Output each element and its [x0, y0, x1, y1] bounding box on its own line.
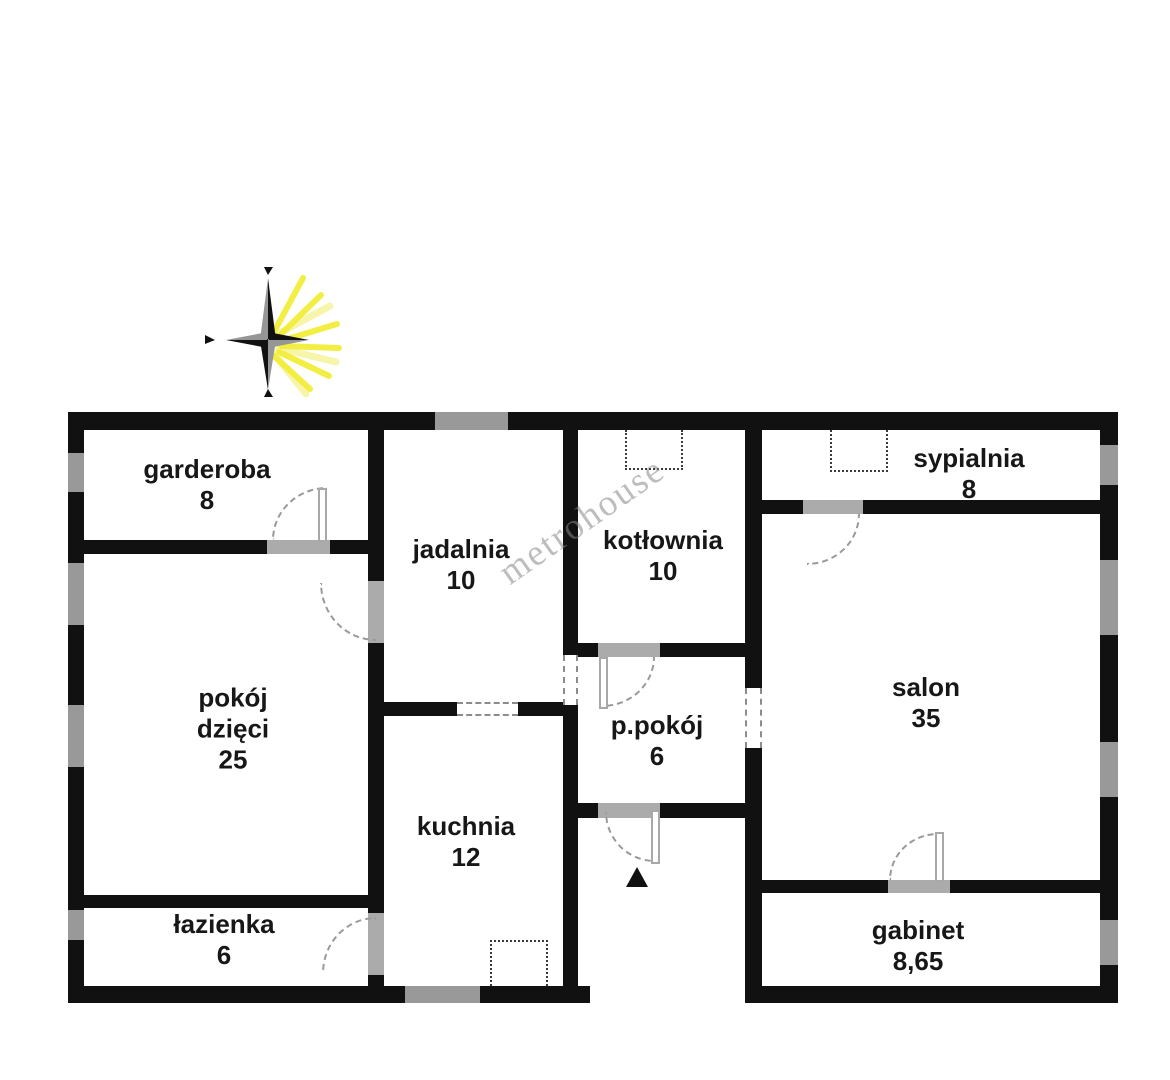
- room-name: salon: [892, 672, 960, 703]
- room-label-kuchnia: kuchnia 12: [417, 811, 515, 873]
- wall-exterior-top: [68, 412, 1118, 430]
- window-gabinet-right: [1100, 920, 1118, 965]
- door-leaf-garderoba: [318, 488, 327, 542]
- room-area: 8,65: [872, 946, 964, 977]
- wall-exterior-right: [1100, 412, 1118, 1003]
- door-swing-arc-entrance: [605, 812, 655, 862]
- room-area: 6: [611, 741, 703, 772]
- wall-kotlownia-bottom: [563, 643, 762, 657]
- room-label-garderoba: garderoba 8: [143, 454, 270, 516]
- passage-jadalnia-kuchnia: [457, 702, 518, 716]
- door-leaf-gabinet: [935, 832, 944, 882]
- door-swing-arc-kotlownia: [602, 657, 655, 707]
- window-salon-right-lower: [1100, 742, 1118, 797]
- room-name: kuchnia: [417, 811, 515, 842]
- wall-exterior-bottom-right: [747, 986, 1118, 1003]
- room-label-pokoj-dzieci: pokój dzięci 25: [173, 683, 293, 776]
- window-lazienka-left: [68, 910, 84, 940]
- room-name: sypialnia: [913, 443, 1024, 474]
- room-area: 12: [417, 842, 515, 873]
- window-kuchnia-bottom: [405, 986, 480, 1003]
- window-salon-right-upper: [1100, 560, 1118, 635]
- room-label-lazienka: łazienka 6: [173, 909, 274, 971]
- room-area: 6: [173, 940, 274, 971]
- door-swing-arc-gabinet: [889, 833, 938, 880]
- floor-plan-canvas: metrohouse garderoba 8 jadalnia 10 kotło…: [0, 0, 1170, 1080]
- door-opening-sypialnia: [803, 500, 863, 514]
- entrance-arrow: [626, 867, 648, 887]
- wall-lazienka-top: [68, 895, 384, 908]
- room-area: 25: [173, 745, 293, 776]
- chimney-outline-sypialnia: [830, 430, 888, 472]
- door-swing-arc-lazienka: [322, 917, 376, 973]
- wall-garderoba-bottom: [68, 540, 384, 554]
- room-area: 8: [143, 485, 270, 516]
- room-label-gabinet: gabinet 8,65: [872, 915, 964, 977]
- passage-jadalnia-ppokoj: [563, 655, 578, 705]
- room-area: 35: [892, 703, 960, 734]
- stove-outline-kuchnia: [490, 940, 548, 986]
- door-swing-arc-pokoj-dzieci: [320, 583, 376, 641]
- passage-ppokoj-salon: [745, 688, 762, 748]
- window-garderoba-left: [68, 453, 84, 492]
- room-name: p.pokój: [611, 710, 703, 741]
- compass-rose-icon: [190, 262, 355, 402]
- room-name: garderoba: [143, 454, 270, 485]
- window-sypialnia-right: [1100, 445, 1118, 485]
- room-name: gabinet: [872, 915, 964, 946]
- door-leaf-kotlownia: [599, 657, 608, 709]
- door-swing-arc-sypialnia: [807, 514, 860, 565]
- room-label-kotlownia: kotłownia 10: [603, 525, 723, 587]
- room-name: pokój dzięci: [173, 683, 293, 745]
- room-name: łazienka: [173, 909, 274, 940]
- wall-exterior-bottom-left: [68, 986, 590, 1003]
- window-pokoj-dzieci-lower: [68, 705, 84, 767]
- door-opening-garderoba: [267, 540, 330, 554]
- window-jadalnia-top: [435, 412, 508, 430]
- room-label-p-pokoj: p.pokój 6: [611, 710, 703, 772]
- room-label-sypialnia: sypialnia 8: [913, 443, 1024, 505]
- door-opening-kotlownia: [598, 643, 660, 657]
- wall-entrance-recess: [563, 803, 762, 818]
- window-pokoj-dzieci-upper: [68, 563, 84, 625]
- door-leaf-entrance: [651, 810, 660, 864]
- room-area: 8: [913, 474, 1024, 505]
- room-label-salon: salon 35: [892, 672, 960, 734]
- room-area: 10: [413, 565, 510, 596]
- room-area: 10: [603, 556, 723, 587]
- room-name: kotłownia: [603, 525, 723, 556]
